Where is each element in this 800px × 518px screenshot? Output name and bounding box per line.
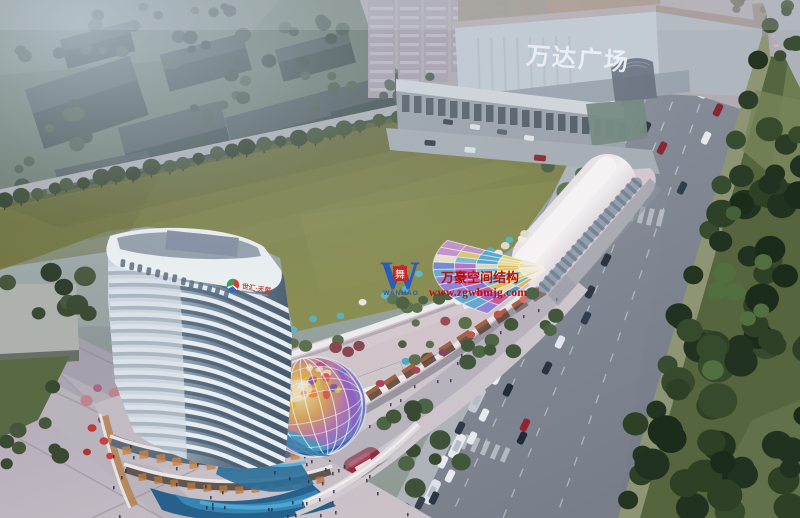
svg-text:WANHAO: WANHAO (383, 290, 419, 297)
svg-text:www.zgwhmjg.com: www.zgwhmjg.com (429, 287, 527, 299)
svg-text:舞: 舞 (395, 269, 405, 281)
svg-text:万豪空间结构: 万豪空间结构 (440, 270, 519, 285)
